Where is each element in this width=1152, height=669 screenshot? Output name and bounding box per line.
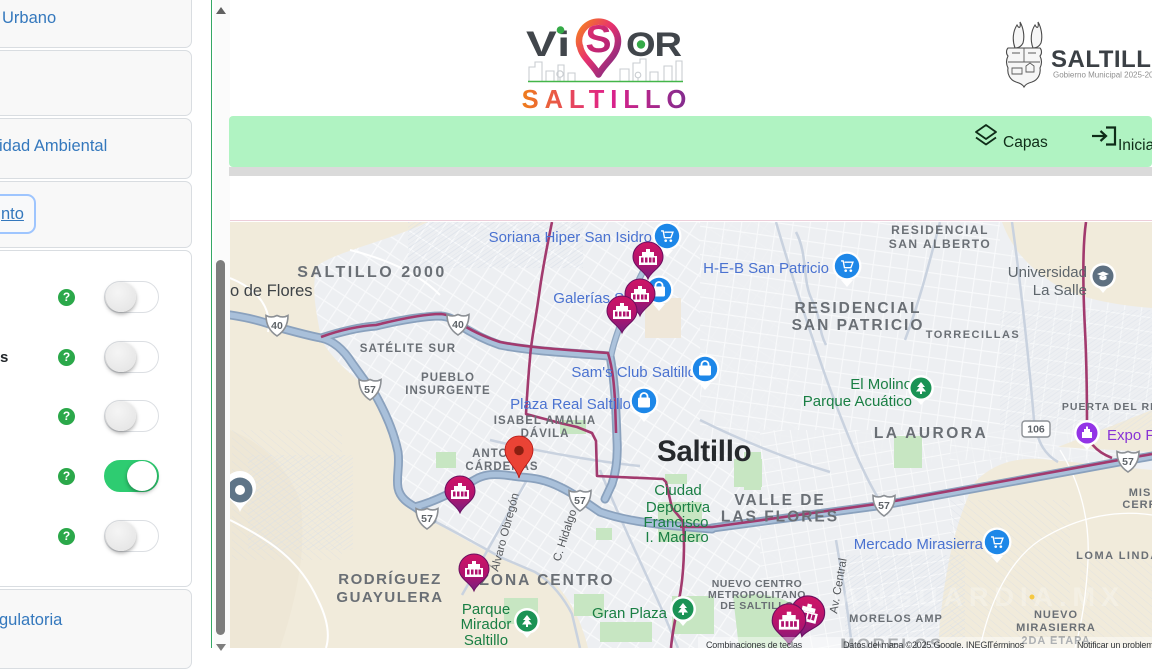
svg-text:LA AURORA: LA AURORA <box>874 425 988 442</box>
svg-text:106: 106 <box>1027 424 1045 436</box>
svg-text:57: 57 <box>364 384 376 396</box>
svg-text:SALTILLO: SALTILLO <box>522 86 693 114</box>
svg-text:Ciudad: Ciudad <box>654 482 702 499</box>
svg-text:Sam's Club Saltillo: Sam's Club Saltillo <box>571 364 696 381</box>
svg-text:Saltillo: Saltillo <box>464 632 508 648</box>
svg-text:40: 40 <box>452 319 464 331</box>
svg-text:57: 57 <box>421 513 433 525</box>
svg-text:LOMA LINDA: LOMA LINDA <box>1076 550 1152 562</box>
svg-text:DÁVILA: DÁVILA <box>521 427 570 440</box>
svg-text:CERR: CERR <box>1122 499 1152 511</box>
svg-text:Términos: Términos <box>988 640 1025 648</box>
svg-text:RESIDENCIAL: RESIDENCIAL <box>794 300 921 317</box>
svg-text:57: 57 <box>878 500 890 512</box>
svg-text:Gobierno Municipal 2025-2027: Gobierno Municipal 2025-2027 <box>1053 71 1152 80</box>
svg-text:Universidad: Universidad <box>1008 264 1087 281</box>
svg-text:SALTILLO 2000: SALTILLO 2000 <box>297 264 447 281</box>
svg-text:OR: OR <box>626 25 682 64</box>
svg-text:SAN PATRICIO: SAN PATRICIO <box>792 317 925 334</box>
svg-text:INSURGENTE: INSURGENTE <box>405 385 490 397</box>
svg-text:57: 57 <box>574 495 586 507</box>
svg-text:40: 40 <box>271 320 283 332</box>
svg-text:MIS: MIS <box>1129 487 1152 499</box>
svg-text:PUEBLO: PUEBLO <box>421 372 475 384</box>
svg-text:PUERTA DEL RE: PUERTA DEL RE <box>1062 401 1152 413</box>
svg-text:SAN ALBERTO: SAN ALBERTO <box>889 237 992 251</box>
svg-text:SALTILLO: SALTILLO <box>1051 46 1152 73</box>
svg-text:Mercado Mirasierra: Mercado Mirasierra <box>854 536 984 553</box>
svg-text:Plaza Real Saltillo: Plaza Real Saltillo <box>510 396 631 413</box>
svg-text:57: 57 <box>1122 456 1134 468</box>
svg-text:TORRECILLAS: TORRECILLAS <box>926 329 1021 341</box>
svg-text:LAS FLORES: LAS FLORES <box>721 509 839 526</box>
svg-text:S: S <box>585 18 611 61</box>
svg-text:El Molino: El Molino <box>850 376 912 393</box>
svg-text:Parque Acuático: Parque Acuático <box>803 393 912 410</box>
svg-text:Saltillo: Saltillo <box>657 435 751 468</box>
svg-text:MORELOS AMP: MORELOS AMP <box>849 613 943 625</box>
svg-text:VALLE DE: VALLE DE <box>734 492 826 509</box>
svg-text:MIRASIERRA: MIRASIERRA <box>1016 622 1096 634</box>
svg-text:Datos del mapa ©2025 Google, I: Datos del mapa ©2025 Google, INEGI <box>843 640 989 648</box>
svg-text:GUAYULERA: GUAYULERA <box>336 589 443 606</box>
svg-text:Soriana Hiper San Isidro: Soriana Hiper San Isidro <box>489 229 652 246</box>
svg-text:Combinaciones de teclas: Combinaciones de teclas <box>706 640 803 648</box>
svg-text:RESIDENCIAL: RESIDENCIAL <box>891 223 989 237</box>
svg-text:Gran Plaza: Gran Plaza <box>592 605 668 622</box>
svg-text:Vi: Vi <box>526 24 571 63</box>
svg-text:ISABEL AMALIA: ISABEL AMALIA <box>494 415 596 427</box>
svg-text:Mirador: Mirador <box>461 616 512 633</box>
svg-text:Capas: Capas <box>1003 134 1048 151</box>
svg-text:La Salle: La Salle <box>1033 282 1087 299</box>
svg-text:RODRÍGUEZ: RODRÍGUEZ <box>338 571 442 588</box>
svg-text:ANGUARDIA.MX: ANGUARDIA.MX <box>840 582 1125 612</box>
svg-text:ZONA CENTRO: ZONA CENTRO <box>479 572 614 589</box>
svg-text:SATÉLITE SUR: SATÉLITE SUR <box>360 342 457 355</box>
svg-text:o de Flores: o de Flores <box>230 282 313 300</box>
svg-text:Notificar un problema: Notificar un problema <box>1077 640 1152 648</box>
svg-text:Iniciar: Iniciar <box>1118 137 1152 152</box>
svg-text:Expo F: Expo F <box>1107 427 1152 444</box>
svg-text:I. Madero: I. Madero <box>645 529 708 546</box>
svg-text:H-E-B San Patricio: H-E-B San Patricio <box>703 260 829 277</box>
